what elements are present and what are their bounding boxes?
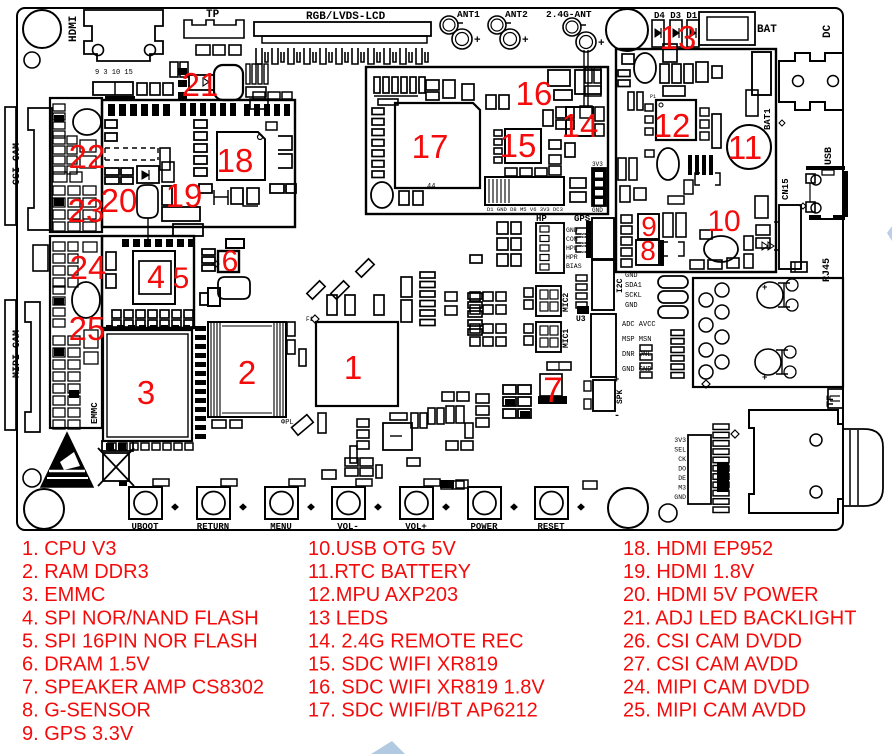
svg-text:17: 17 bbox=[412, 128, 449, 165]
svg-text:MENU: MENU bbox=[270, 522, 292, 532]
svg-text:+: + bbox=[474, 35, 481, 47]
svg-text:ANT2: ANT2 bbox=[505, 9, 528, 20]
svg-text:UBOOT: UBOOT bbox=[131, 522, 159, 532]
svg-text:9 3 10 15: 9 3 10 15 bbox=[95, 69, 133, 77]
svg-text:RJ45: RJ45 bbox=[822, 258, 833, 282]
svg-text:3. EMMC: 3. EMMC bbox=[22, 584, 105, 606]
svg-text:USB: USB bbox=[824, 147, 835, 165]
svg-text:21. ADJ LED BACKLIGHT: 21. ADJ LED BACKLIGHT bbox=[623, 607, 856, 629]
svg-text:RETURN: RETURN bbox=[197, 522, 229, 532]
svg-text:CK: CK bbox=[678, 456, 686, 463]
svg-text:23: 23 bbox=[68, 192, 105, 229]
svg-text:16: 16 bbox=[516, 75, 553, 112]
svg-text:24. MIPI CAM DVDD: 24. MIPI CAM DVDD bbox=[623, 677, 810, 699]
svg-text:24: 24 bbox=[70, 249, 107, 286]
svg-text:27. CSI CAM AVDD: 27. CSI CAM AVDD bbox=[623, 654, 798, 676]
svg-text:HPR: HPR bbox=[566, 254, 578, 261]
svg-text:BAT: BAT bbox=[757, 24, 777, 36]
svg-text:26. CSI CAM DVDD: 26. CSI CAM DVDD bbox=[623, 630, 802, 652]
svg-text:MIPI-CAM: MIPI-CAM bbox=[12, 330, 23, 378]
svg-text:2. RAM DDR3: 2. RAM DDR3 bbox=[22, 561, 149, 583]
svg-text:GND: GND bbox=[625, 302, 638, 310]
svg-text:19: 19 bbox=[166, 177, 203, 214]
svg-text:HDMI: HDMI bbox=[68, 16, 80, 42]
svg-text:18. HDMI EP952: 18. HDMI EP952 bbox=[623, 538, 773, 560]
svg-text:ANT1: ANT1 bbox=[457, 9, 480, 20]
svg-text:7: 7 bbox=[543, 371, 562, 410]
svg-text:GND: GND bbox=[674, 494, 686, 501]
svg-text:9. GPS 3.3V: 9. GPS 3.3V bbox=[22, 723, 134, 745]
svg-text:25: 25 bbox=[69, 310, 106, 347]
svg-text:16. SDC WIFI XR819 1.8V: 16. SDC WIFI XR819 1.8V bbox=[308, 677, 545, 699]
svg-text:M3: M3 bbox=[678, 485, 686, 492]
svg-text:TF: TF bbox=[826, 395, 837, 407]
svg-text:CN15: CN15 bbox=[781, 178, 791, 200]
svg-text:8: 8 bbox=[640, 235, 656, 266]
svg-text:15: 15 bbox=[500, 127, 537, 164]
svg-text:25. MIPI CAM AVDD: 25. MIPI CAM AVDD bbox=[623, 700, 806, 722]
svg-text:17. SDC WIFI/BT AP6212: 17. SDC WIFI/BT AP6212 bbox=[308, 700, 538, 722]
svg-text:5. SPI 16PIN NOR FLASH: 5. SPI 16PIN NOR FLASH bbox=[22, 630, 258, 652]
svg-text:MSP MSN: MSP MSN bbox=[622, 336, 651, 344]
svg-text:EMMC: EMMC bbox=[90, 402, 100, 424]
svg-text:2.4G-ANT: 2.4G-ANT bbox=[546, 9, 592, 20]
svg-text:RXD TXD: RXD TXD bbox=[604, 176, 611, 200]
svg-text:4. SPI NOR/NAND FLASH: 4. SPI NOR/NAND FLASH bbox=[22, 607, 259, 629]
svg-text:D1 GND D8 M5 V6 3V3 DC3: D1 GND D8 M5 V6 3V3 DC3 bbox=[487, 206, 563, 213]
svg-text:3V3: 3V3 bbox=[674, 437, 686, 444]
svg-text:6. DRAM 1.5V: 6. DRAM 1.5V bbox=[22, 654, 150, 676]
svg-text:U3: U3 bbox=[576, 315, 586, 324]
svg-text:+: + bbox=[614, 375, 619, 385]
svg-text:12: 12 bbox=[654, 107, 691, 144]
svg-text:6: 6 bbox=[222, 245, 239, 278]
svg-text:3: 3 bbox=[137, 374, 155, 411]
svg-text:1. CPU V3: 1. CPU V3 bbox=[22, 538, 116, 560]
svg-text:GND: GND bbox=[625, 272, 638, 280]
svg-text:DE: DE bbox=[678, 475, 686, 482]
svg-text:GND: GND bbox=[566, 227, 578, 234]
svg-text:TP: TP bbox=[206, 9, 220, 21]
svg-text:HPL: HPL bbox=[566, 245, 578, 252]
svg-text:12.MPU AXP203: 12.MPU AXP203 bbox=[308, 584, 458, 606]
svg-text:VOL+: VOL+ bbox=[405, 522, 427, 532]
svg-text:2: 2 bbox=[238, 354, 256, 391]
svg-text:44: 44 bbox=[427, 183, 435, 191]
svg-text:3V3GPS2: 3V3GPS2 bbox=[581, 233, 587, 254]
svg-text:RESET: RESET bbox=[537, 522, 565, 532]
svg-text:GND: GND bbox=[592, 207, 603, 214]
svg-text:COM: COM bbox=[566, 236, 578, 243]
svg-text:18: 18 bbox=[217, 142, 254, 179]
svg-text:CSI-CAM: CSI-CAM bbox=[12, 143, 23, 185]
svg-text:BIAS: BIAS bbox=[566, 263, 582, 270]
svg-text:11: 11 bbox=[728, 129, 762, 166]
svg-text:20: 20 bbox=[101, 182, 138, 219]
svg-text:POWER: POWER bbox=[470, 522, 498, 532]
svg-text:8. G-SENSOR: 8. G-SENSOR bbox=[22, 700, 151, 722]
svg-text:MIC1: MIC1 bbox=[562, 329, 571, 348]
svg-text:I2C: I2C bbox=[616, 278, 625, 293]
svg-text:19. HDMI 1.8V: 19. HDMI 1.8V bbox=[623, 561, 755, 583]
svg-text:SPK: SPK bbox=[616, 389, 625, 404]
svg-text:-: - bbox=[614, 411, 620, 422]
svg-text:+: + bbox=[762, 373, 767, 383]
svg-text:7. SPEAKER AMP CS8302: 7. SPEAKER AMP CS8302 bbox=[22, 677, 264, 699]
svg-text:11.RTC BATTERY: 11.RTC BATTERY bbox=[308, 561, 471, 583]
svg-text:13 LEDS: 13 LEDS bbox=[308, 607, 388, 629]
svg-text:ΦPL: ΦPL bbox=[281, 419, 294, 427]
svg-text:SEL: SEL bbox=[674, 447, 686, 454]
svg-text:20. HDMI 5V POWER: 20. HDMI 5V POWER bbox=[623, 584, 819, 606]
svg-text:GND GND: GND GND bbox=[622, 366, 651, 374]
svg-text:5: 5 bbox=[173, 262, 190, 295]
svg-text:BAT1: BAT1 bbox=[763, 108, 773, 130]
svg-text:15. SDC WIFI XR819: 15. SDC WIFI XR819 bbox=[308, 654, 498, 676]
svg-text:DO: DO bbox=[678, 466, 686, 473]
svg-text:10.USB OTG 5V: 10.USB OTG 5V bbox=[308, 538, 456, 560]
svg-text:+: + bbox=[762, 283, 767, 293]
svg-text:3V3: 3V3 bbox=[592, 161, 603, 168]
svg-text:P1: P1 bbox=[650, 94, 656, 100]
svg-text:SDA1: SDA1 bbox=[625, 282, 642, 290]
svg-text:1: 1 bbox=[344, 349, 362, 386]
svg-text:ADC AVCC: ADC AVCC bbox=[622, 321, 656, 329]
svg-text:14: 14 bbox=[562, 107, 599, 144]
svg-text:14. 2.4G REMOTE REC: 14. 2.4G REMOTE REC bbox=[308, 630, 524, 652]
svg-text:DC: DC bbox=[822, 24, 834, 38]
svg-text:SCKL: SCKL bbox=[625, 292, 642, 300]
svg-text:+: + bbox=[522, 35, 529, 47]
svg-text:MIC2: MIC2 bbox=[562, 293, 571, 312]
svg-text:DNR DNL: DNR DNL bbox=[622, 351, 651, 359]
svg-text:13: 13 bbox=[660, 19, 697, 56]
svg-text:+: + bbox=[598, 38, 605, 50]
svg-text:22: 22 bbox=[69, 138, 106, 175]
svg-text:21: 21 bbox=[182, 66, 219, 103]
svg-text:10: 10 bbox=[707, 205, 740, 238]
svg-text:4: 4 bbox=[147, 259, 165, 295]
svg-text:VOL-: VOL- bbox=[337, 522, 359, 532]
